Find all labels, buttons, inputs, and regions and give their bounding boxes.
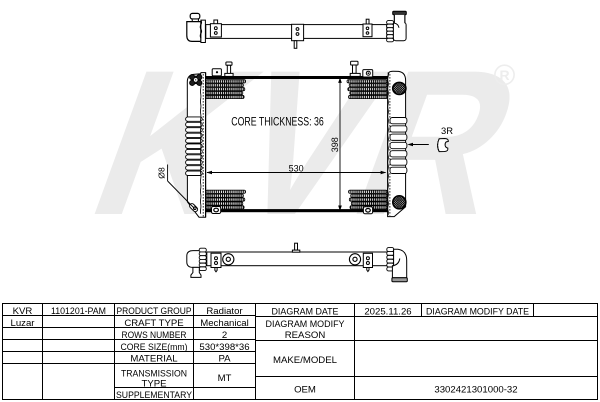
svg-text:KVR: KVR <box>66 28 548 258</box>
svg-text:DIAGRAM MODIFY DATE: DIAGRAM MODIFY DATE <box>426 306 529 317</box>
svg-text:DIAGRAM DATE: DIAGRAM DATE <box>272 306 339 317</box>
svg-text:DIAGRAM MODIFY: DIAGRAM MODIFY <box>266 319 346 330</box>
svg-text:3302421301000-32: 3302421301000-32 <box>434 385 517 396</box>
svg-text:2025.11.26: 2025.11.26 <box>364 306 411 317</box>
svg-text:2: 2 <box>222 330 227 341</box>
svg-text:530*398*36: 530*398*36 <box>199 342 249 353</box>
svg-text:SUPPLEMENTARY: SUPPLEMENTARY <box>116 390 193 401</box>
svg-text:398: 398 <box>330 137 340 152</box>
svg-text:CRAFT TYPE: CRAFT TYPE <box>124 318 183 329</box>
svg-text:CORE THICKNESS: 36: CORE THICKNESS: 36 <box>231 114 324 128</box>
svg-text:Mechanical: Mechanical <box>200 318 249 329</box>
svg-text:PA: PA <box>218 354 231 365</box>
svg-text:CORE SIZE(mm): CORE SIZE(mm) <box>121 342 188 353</box>
svg-text:1101201-PAM: 1101201-PAM <box>51 306 106 317</box>
svg-text:MATERIAL: MATERIAL <box>130 354 178 365</box>
svg-text:ROWS NUMBER: ROWS NUMBER <box>122 330 187 341</box>
svg-text:3R: 3R <box>441 125 453 136</box>
svg-text:REASON: REASON <box>285 330 326 341</box>
svg-text:MT: MT <box>218 373 232 384</box>
svg-text:530: 530 <box>289 164 304 174</box>
svg-text:Ø8: Ø8 <box>157 167 167 179</box>
svg-text:KVR: KVR <box>13 306 33 317</box>
svg-text:R: R <box>499 67 509 83</box>
svg-text:MAKE/MODEL: MAKE/MODEL <box>273 355 338 366</box>
svg-text:OEM: OEM <box>294 385 316 396</box>
svg-text:Radiator: Radiator <box>206 306 243 317</box>
svg-text:TYPE: TYPE <box>141 378 166 389</box>
svg-text:PRODUCT GROUP: PRODUCT GROUP <box>117 306 192 317</box>
svg-text:Luzar: Luzar <box>11 318 36 329</box>
